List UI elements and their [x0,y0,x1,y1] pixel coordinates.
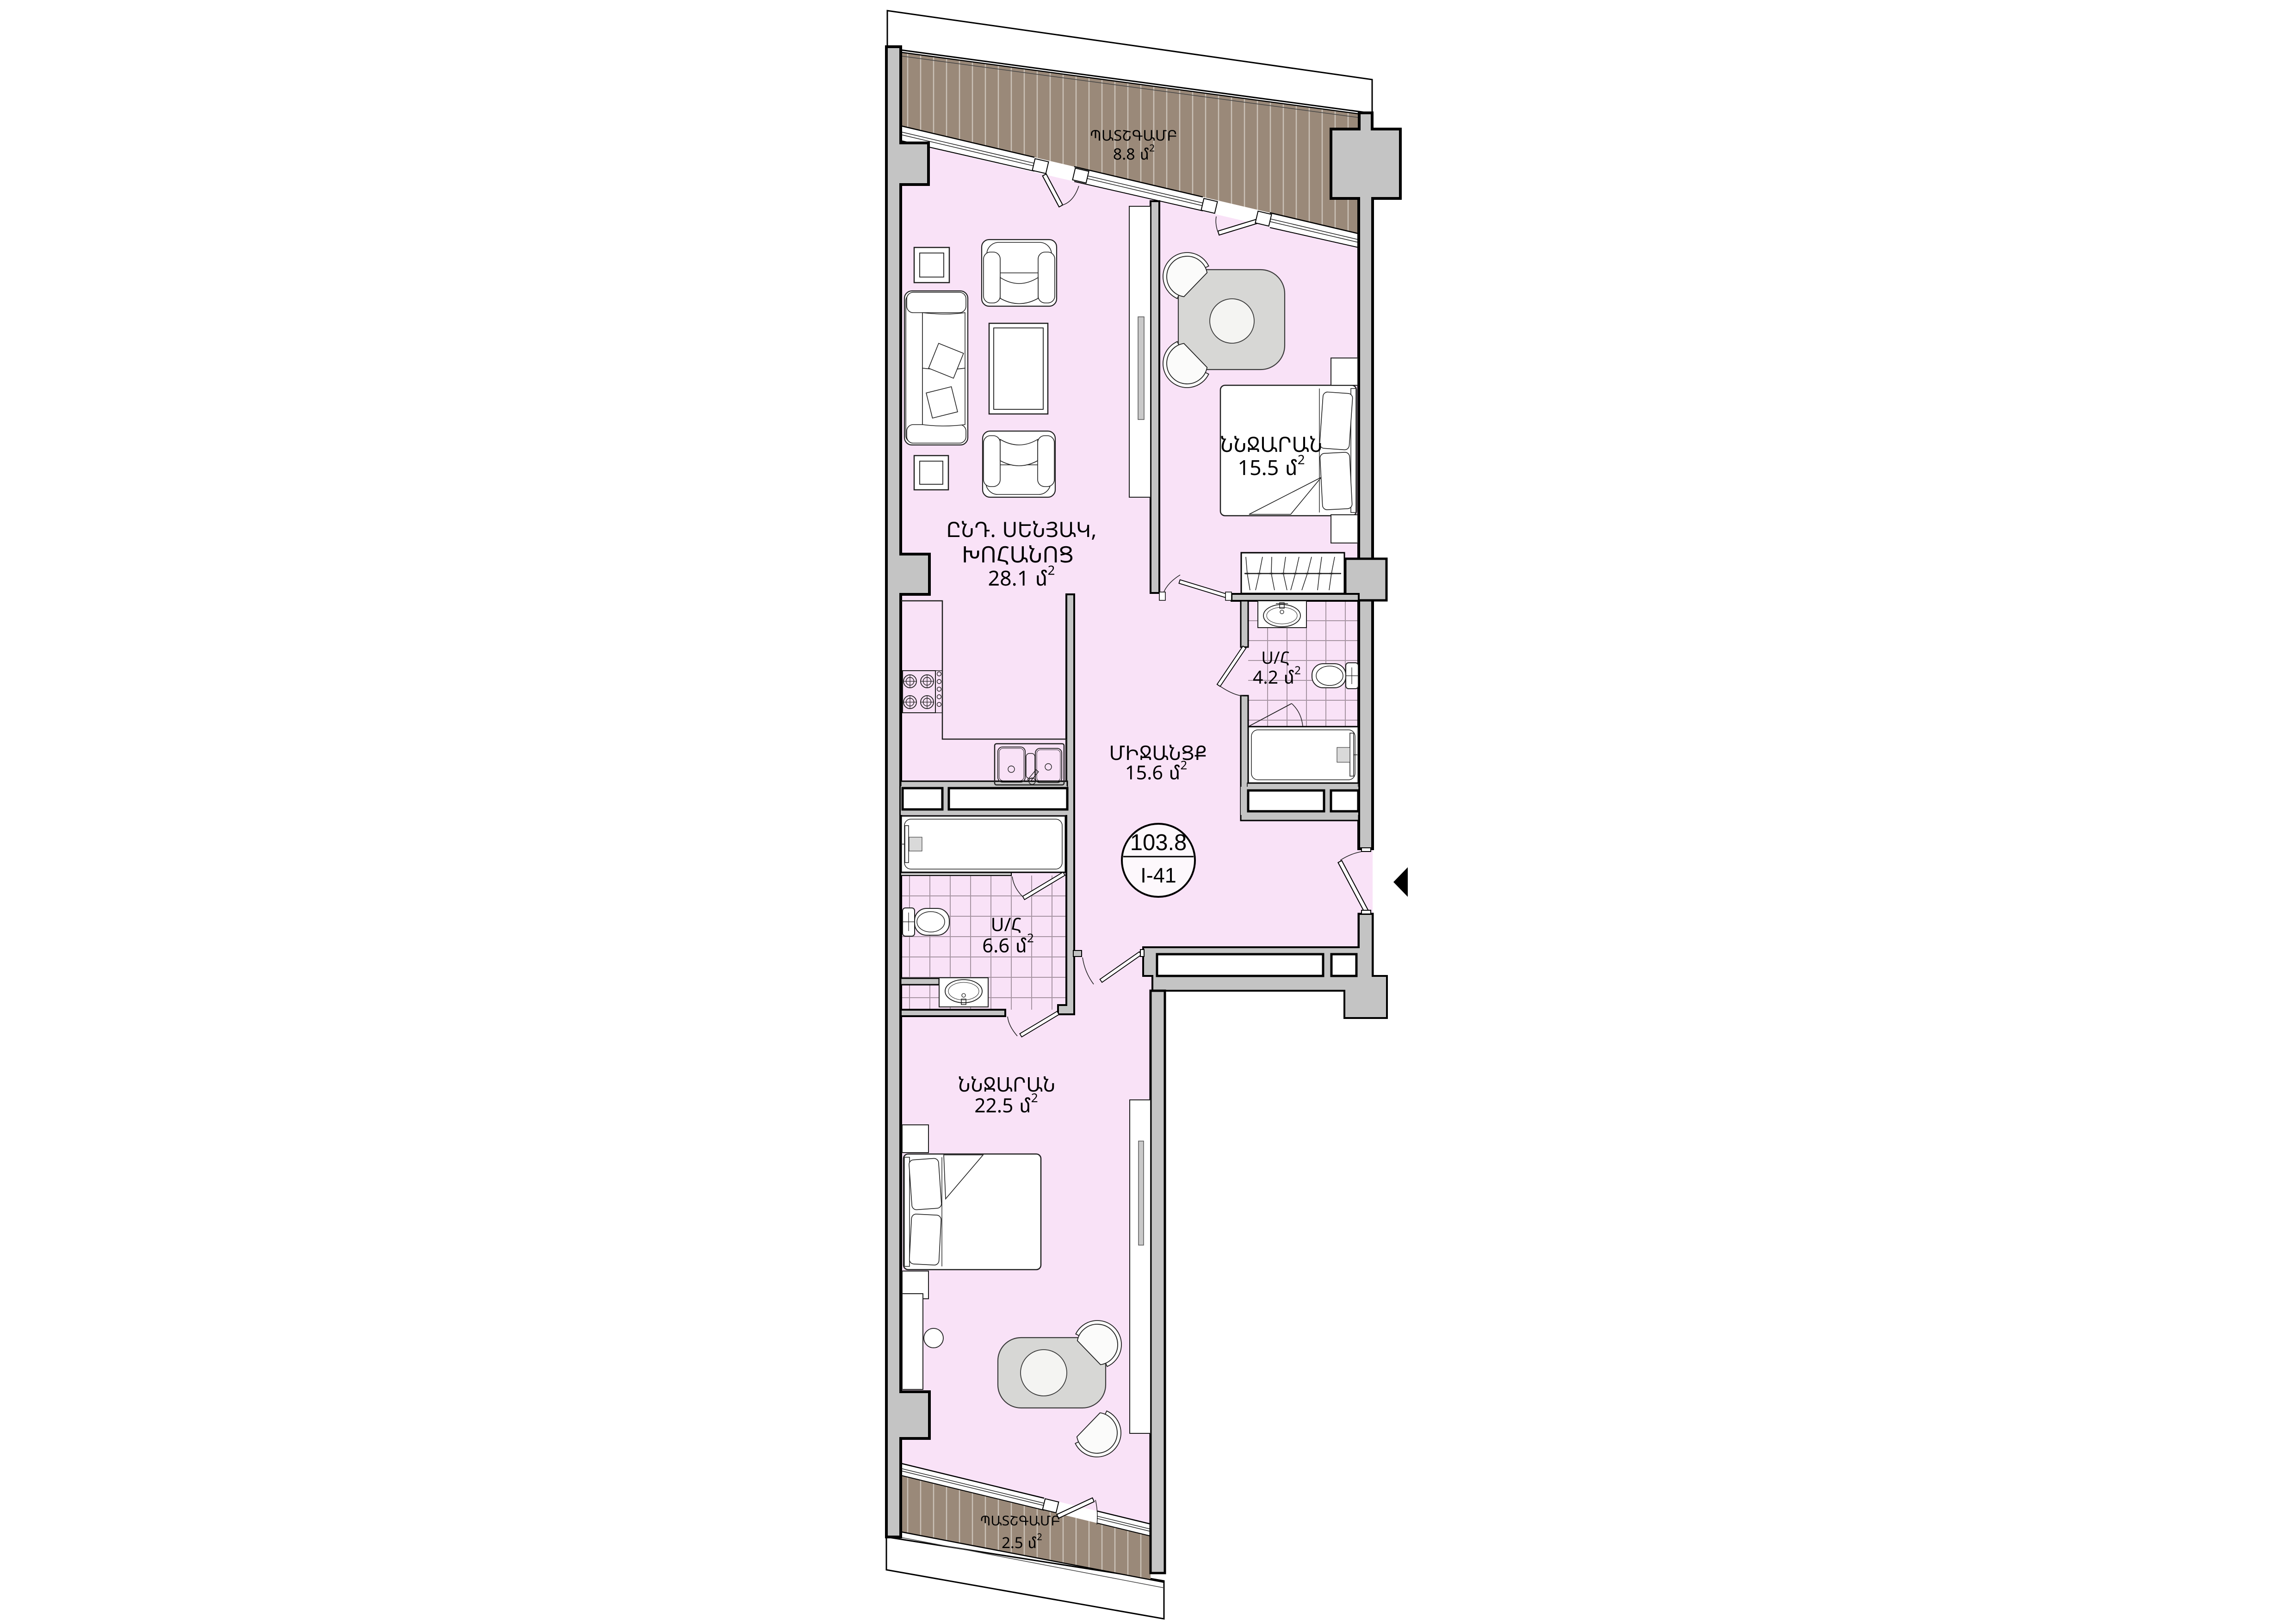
svg-text:I-41: I-41 [1140,864,1176,887]
svg-text:103.8: 103.8 [1130,830,1187,855]
